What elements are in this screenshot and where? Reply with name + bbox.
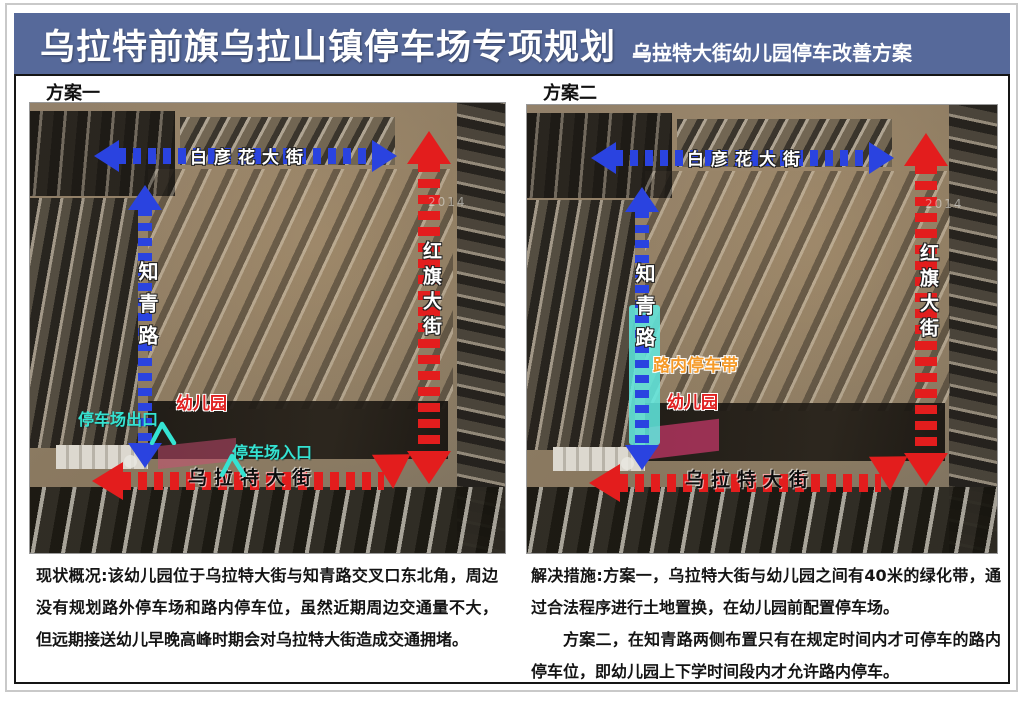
arrowhead-north-west-icon	[94, 140, 119, 172]
arrowhead-south-west-icon	[589, 464, 620, 502]
arrowhead-north-east-icon	[869, 142, 894, 174]
subtitle-dash: ——	[632, 41, 672, 66]
current-situation-note: 现状概况:该幼儿园位于乌拉特大街与知青路交叉口东北角，周边没有规划路外停车场和路…	[36, 560, 498, 656]
satellite-buildings-right	[949, 105, 997, 553]
title-bar: 乌拉特前旗乌拉山镇停车场专项规划 ——乌拉特大街幼儿园停车改善方案	[14, 13, 1010, 76]
onstreet-parking-belt-label: 路内停车带	[653, 351, 738, 376]
parking-exit-label: 停车场出口	[78, 406, 158, 430]
street-label-east: 红旗大街	[418, 241, 445, 341]
street-label-west: 知青路	[133, 261, 162, 357]
satellite-construction-site	[148, 169, 453, 409]
plan1-label: 方案一	[46, 79, 100, 105]
subtitle-text: 乌拉特大街幼儿园停车改善方案	[632, 41, 912, 65]
satellite-buildings-right	[457, 103, 505, 553]
solution-plan2-text: 方案二，在知青路两侧布置只有在规定时间内才可停车的路内停车位，即幼儿园上下学时间…	[531, 624, 1001, 688]
arrowhead-east-up-icon	[407, 131, 451, 164]
street-label-south: 乌拉特大街	[188, 463, 318, 490]
current-situation-text: 现状概况:该幼儿园位于乌拉特大街与知青路交叉口东北角，周边没有规划路外停车场和路…	[36, 560, 498, 656]
arrowhead-north-east-icon	[372, 140, 397, 172]
street-label-east: 红旗大街	[915, 243, 942, 343]
solution-plan1-text: 解决措施:方案一，乌拉特大街与幼儿园之间有40米的绿化带，通过合法程序进行土地置…	[531, 560, 1001, 624]
street-label-west: 知青路	[630, 263, 659, 359]
page-title: 乌拉特前旗乌拉山镇停车场专项规划	[40, 31, 616, 66]
arrowhead-south-west-icon	[92, 462, 123, 500]
arrowhead-west-up-icon	[128, 185, 162, 210]
map-plan1: 2014 白彦花大街 知青路 红旗大街 乌拉特大街 幼儿园 停车场出口 停车场入…	[30, 103, 505, 553]
street-label-south: 乌拉特大街	[685, 465, 815, 492]
arrowhead-north-west-icon	[591, 142, 616, 174]
street-label-north: 白彦花大街	[687, 145, 807, 170]
solution-note: 解决措施:方案一，乌拉特大街与幼儿园之间有40米的绿化带，通过合法程序进行土地置…	[531, 560, 1001, 688]
kindergarten-label: 幼儿园	[667, 388, 718, 413]
arrowhead-west-down-icon	[625, 445, 659, 470]
kindergarten-label: 幼儿园	[176, 389, 227, 414]
exit-direction-arrow-icon	[148, 419, 178, 449]
street-label-north: 白彦花大街	[190, 143, 310, 168]
map-plan2: 2014 白彦花大街 知青路 红旗大街 乌拉特大街 路内停车带 幼儿园	[527, 105, 997, 553]
planning-poster: 乌拉特前旗乌拉山镇停车场专项规划 ——乌拉特大街幼儿园停车改善方案 方案一 方案…	[0, 0, 1024, 702]
page-subtitle: ——乌拉特大街幼儿园停车改善方案	[632, 41, 912, 66]
entrance-direction-arrow-icon	[218, 451, 248, 481]
plan2-label: 方案二	[543, 79, 597, 105]
arrowhead-west-up-icon	[625, 187, 659, 212]
imagery-year-watermark: 2014	[428, 195, 467, 209]
arrowhead-east-up-icon	[904, 133, 948, 166]
imagery-year-watermark: 2014	[925, 197, 964, 211]
satellite-buildings-left	[527, 200, 635, 450]
